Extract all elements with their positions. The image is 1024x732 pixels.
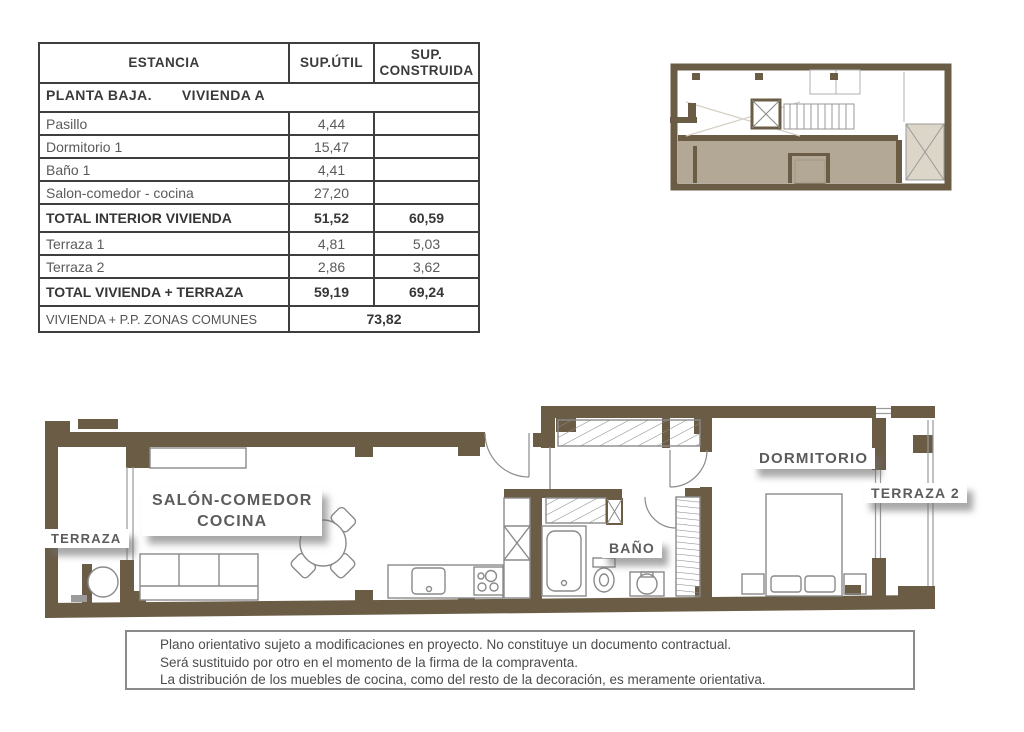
row-label: Terraza 1	[40, 233, 288, 254]
table-section-row: PLANTA BAJA.VIVIENDA A	[40, 82, 478, 111]
row-construida: 69,24	[373, 279, 478, 305]
row-label: Salon-comedor - cocina	[40, 182, 288, 203]
row-construida: 5,03	[373, 233, 478, 254]
row-label: Dormitorio 1	[40, 136, 288, 157]
sideboard	[150, 448, 246, 468]
sofa	[140, 554, 258, 600]
header-sup-construida: SUP. CONSTRUIDA	[373, 44, 478, 82]
row-label: Baño 1	[40, 159, 288, 180]
row-util: 2,86	[288, 256, 373, 277]
row-util: 27,20	[288, 182, 373, 203]
table-footer-row: VIVIENDA + P.P. ZONAS COMUNES 73,82	[40, 305, 478, 331]
terrace-table	[88, 567, 118, 597]
wardrobe	[676, 497, 700, 596]
section-planta: PLANTA BAJA.	[46, 87, 152, 103]
table-total-row: TOTAL VIVIENDA + TERRAZA 59,19 69,24	[40, 277, 478, 305]
header-sup-util: SUP.ÚTIL	[288, 44, 373, 82]
washbasin	[630, 572, 664, 596]
table-row: Salon-comedor - cocina 27,20	[40, 180, 478, 203]
row-util: 51,52	[288, 205, 373, 231]
disclaimer-line: La distribución de los muebles de cocina…	[160, 671, 905, 689]
header-estancia: ESTANCIA	[40, 44, 288, 82]
row-construida	[373, 159, 478, 180]
shower	[542, 526, 586, 596]
row-construida: 3,62	[373, 256, 478, 277]
disclaimer-box: Plano orientativo sujeto a modificacione…	[125, 630, 915, 690]
row-label: Pasillo	[40, 113, 288, 134]
disclaimer-line: Será sustituido por otro en el momento d…	[160, 654, 905, 672]
label-salon-line2: COCINA	[152, 512, 312, 533]
bed	[766, 494, 842, 596]
threshold-mat	[71, 595, 87, 602]
row-construida: 60,59	[373, 205, 478, 231]
bath-closet	[546, 498, 606, 523]
footer-label: VIVIENDA + P.P. ZONAS COMUNES	[40, 307, 288, 331]
label-dormitorio: DORMITORIO	[752, 448, 875, 469]
label-terraza: TERRAZA	[44, 529, 129, 548]
brochure-page: ESTANCIA SUP.ÚTIL SUP. CONSTRUIDA PLANTA…	[0, 0, 1024, 732]
row-construida	[373, 113, 478, 134]
section-vivienda: VIVIENDA A	[182, 87, 265, 103]
label-bano: BAÑO	[602, 538, 662, 558]
tall-unit	[504, 498, 530, 598]
row-label: Terraza 2	[40, 256, 288, 277]
row-construida	[373, 182, 478, 203]
label-salon-comedor-cocina: SALÓN-COMEDOR COCINA	[142, 488, 322, 536]
table-row: Terraza 1 4,81 5,03	[40, 231, 478, 254]
table-header-row: ESTANCIA SUP.ÚTIL SUP. CONSTRUIDA	[40, 44, 478, 82]
label-salon-line1: SALÓN-COMEDOR	[152, 491, 312, 512]
row-util: 4,81	[288, 233, 373, 254]
table-row: Pasillo 4,44	[40, 111, 478, 134]
toilet	[593, 558, 615, 592]
row-util: 4,44	[288, 113, 373, 134]
window-gap	[876, 406, 891, 418]
row-label: TOTAL VIVIENDA + TERRAZA	[40, 279, 288, 305]
table-row: Dormitorio 1 15,47	[40, 134, 478, 157]
table-row: Terraza 2 2,86 3,62	[40, 254, 478, 277]
row-construida	[373, 136, 478, 157]
key-plan-drawing	[655, 50, 965, 200]
area-table: ESTANCIA SUP.ÚTIL SUP. CONSTRUIDA PLANTA…	[38, 42, 480, 333]
table-total-row: TOTAL INTERIOR VIVIENDA 51,52 60,59	[40, 203, 478, 231]
nightstand	[742, 574, 764, 594]
row-util: 15,47	[288, 136, 373, 157]
footer-value: 73,82	[288, 307, 478, 331]
duct	[607, 499, 622, 524]
table-row: Baño 1 4,41	[40, 157, 478, 180]
row-util: 59,19	[288, 279, 373, 305]
kitchen-counter	[388, 565, 504, 598]
row-util: 4,41	[288, 159, 373, 180]
label-terraza-2: TERRAZA 2	[864, 483, 967, 503]
hall-closet	[558, 420, 700, 446]
row-label: TOTAL INTERIOR VIVIENDA	[40, 205, 288, 231]
disclaimer-line: Plano orientativo sujeto a modificacione…	[160, 636, 905, 654]
